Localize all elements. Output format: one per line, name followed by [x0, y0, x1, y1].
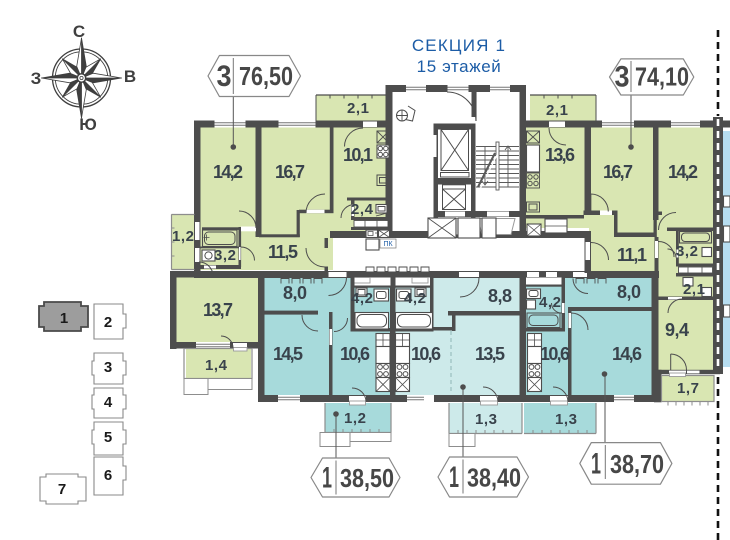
svg-text:2: 2	[104, 314, 112, 331]
svg-text:13,6: 13,6	[545, 145, 575, 165]
svg-text:10,6: 10,6	[340, 344, 370, 364]
svg-text:3: 3	[615, 61, 630, 94]
svg-text:В: В	[124, 67, 136, 86]
svg-text:16,7: 16,7	[275, 162, 305, 182]
svg-text:2,1: 2,1	[347, 100, 369, 117]
svg-text:38,70: 38,70	[610, 449, 664, 479]
svg-text:8,8: 8,8	[488, 286, 512, 306]
svg-text:1,3: 1,3	[555, 411, 577, 428]
svg-text:СЕКЦИЯ 1: СЕКЦИЯ 1	[412, 36, 506, 55]
svg-text:З: З	[31, 69, 42, 88]
svg-text:8,0: 8,0	[283, 283, 307, 303]
svg-text:2,4: 2,4	[351, 201, 374, 218]
svg-text:1,2: 1,2	[172, 228, 194, 245]
svg-text:11,5: 11,5	[268, 242, 298, 262]
svg-text:1,4: 1,4	[205, 357, 228, 374]
svg-text:ПК: ПК	[383, 241, 393, 248]
svg-text:6: 6	[104, 467, 112, 484]
svg-text:15 этажей: 15 этажей	[417, 57, 502, 76]
svg-text:С: С	[73, 22, 85, 41]
svg-text:14,2: 14,2	[213, 162, 243, 182]
svg-text:Ю: Ю	[79, 115, 97, 134]
svg-text:1: 1	[60, 310, 68, 327]
svg-text:11,1: 11,1	[617, 245, 647, 265]
svg-text:38,40: 38,40	[467, 463, 521, 493]
svg-text:3,2: 3,2	[676, 243, 698, 260]
svg-text:1: 1	[591, 448, 601, 481]
svg-text:74,10: 74,10	[635, 62, 689, 92]
svg-text:8,0: 8,0	[617, 282, 641, 302]
svg-text:4: 4	[104, 394, 113, 411]
svg-text:10,6: 10,6	[411, 344, 441, 364]
svg-text:14,5: 14,5	[273, 344, 303, 364]
svg-text:16,7: 16,7	[603, 162, 633, 182]
svg-text:1,2: 1,2	[344, 410, 366, 427]
svg-text:1: 1	[449, 461, 459, 494]
svg-text:4,2: 4,2	[404, 290, 426, 307]
svg-text:3: 3	[104, 359, 112, 376]
svg-text:9,4: 9,4	[665, 320, 689, 340]
svg-text:10,1: 10,1	[343, 145, 373, 165]
svg-text:7: 7	[58, 481, 66, 498]
svg-text:1: 1	[322, 462, 332, 495]
svg-text:1,7: 1,7	[677, 380, 699, 397]
svg-text:4,2: 4,2	[539, 294, 561, 311]
svg-text:5: 5	[104, 429, 112, 446]
svg-text:3,2: 3,2	[214, 247, 236, 264]
svg-text:2,1: 2,1	[683, 281, 705, 298]
svg-text:38,50: 38,50	[340, 463, 394, 493]
svg-text:2,1: 2,1	[546, 102, 568, 119]
svg-text:1,3: 1,3	[475, 411, 497, 428]
svg-text:13,7: 13,7	[203, 300, 233, 320]
svg-text:76,50: 76,50	[239, 61, 293, 91]
svg-text:13,5: 13,5	[475, 344, 505, 364]
svg-text:14,6: 14,6	[612, 344, 642, 364]
svg-text:14,2: 14,2	[668, 162, 698, 182]
svg-text:4,2: 4,2	[351, 290, 373, 307]
svg-text:3: 3	[217, 60, 232, 93]
svg-text:10,6: 10,6	[540, 344, 570, 364]
